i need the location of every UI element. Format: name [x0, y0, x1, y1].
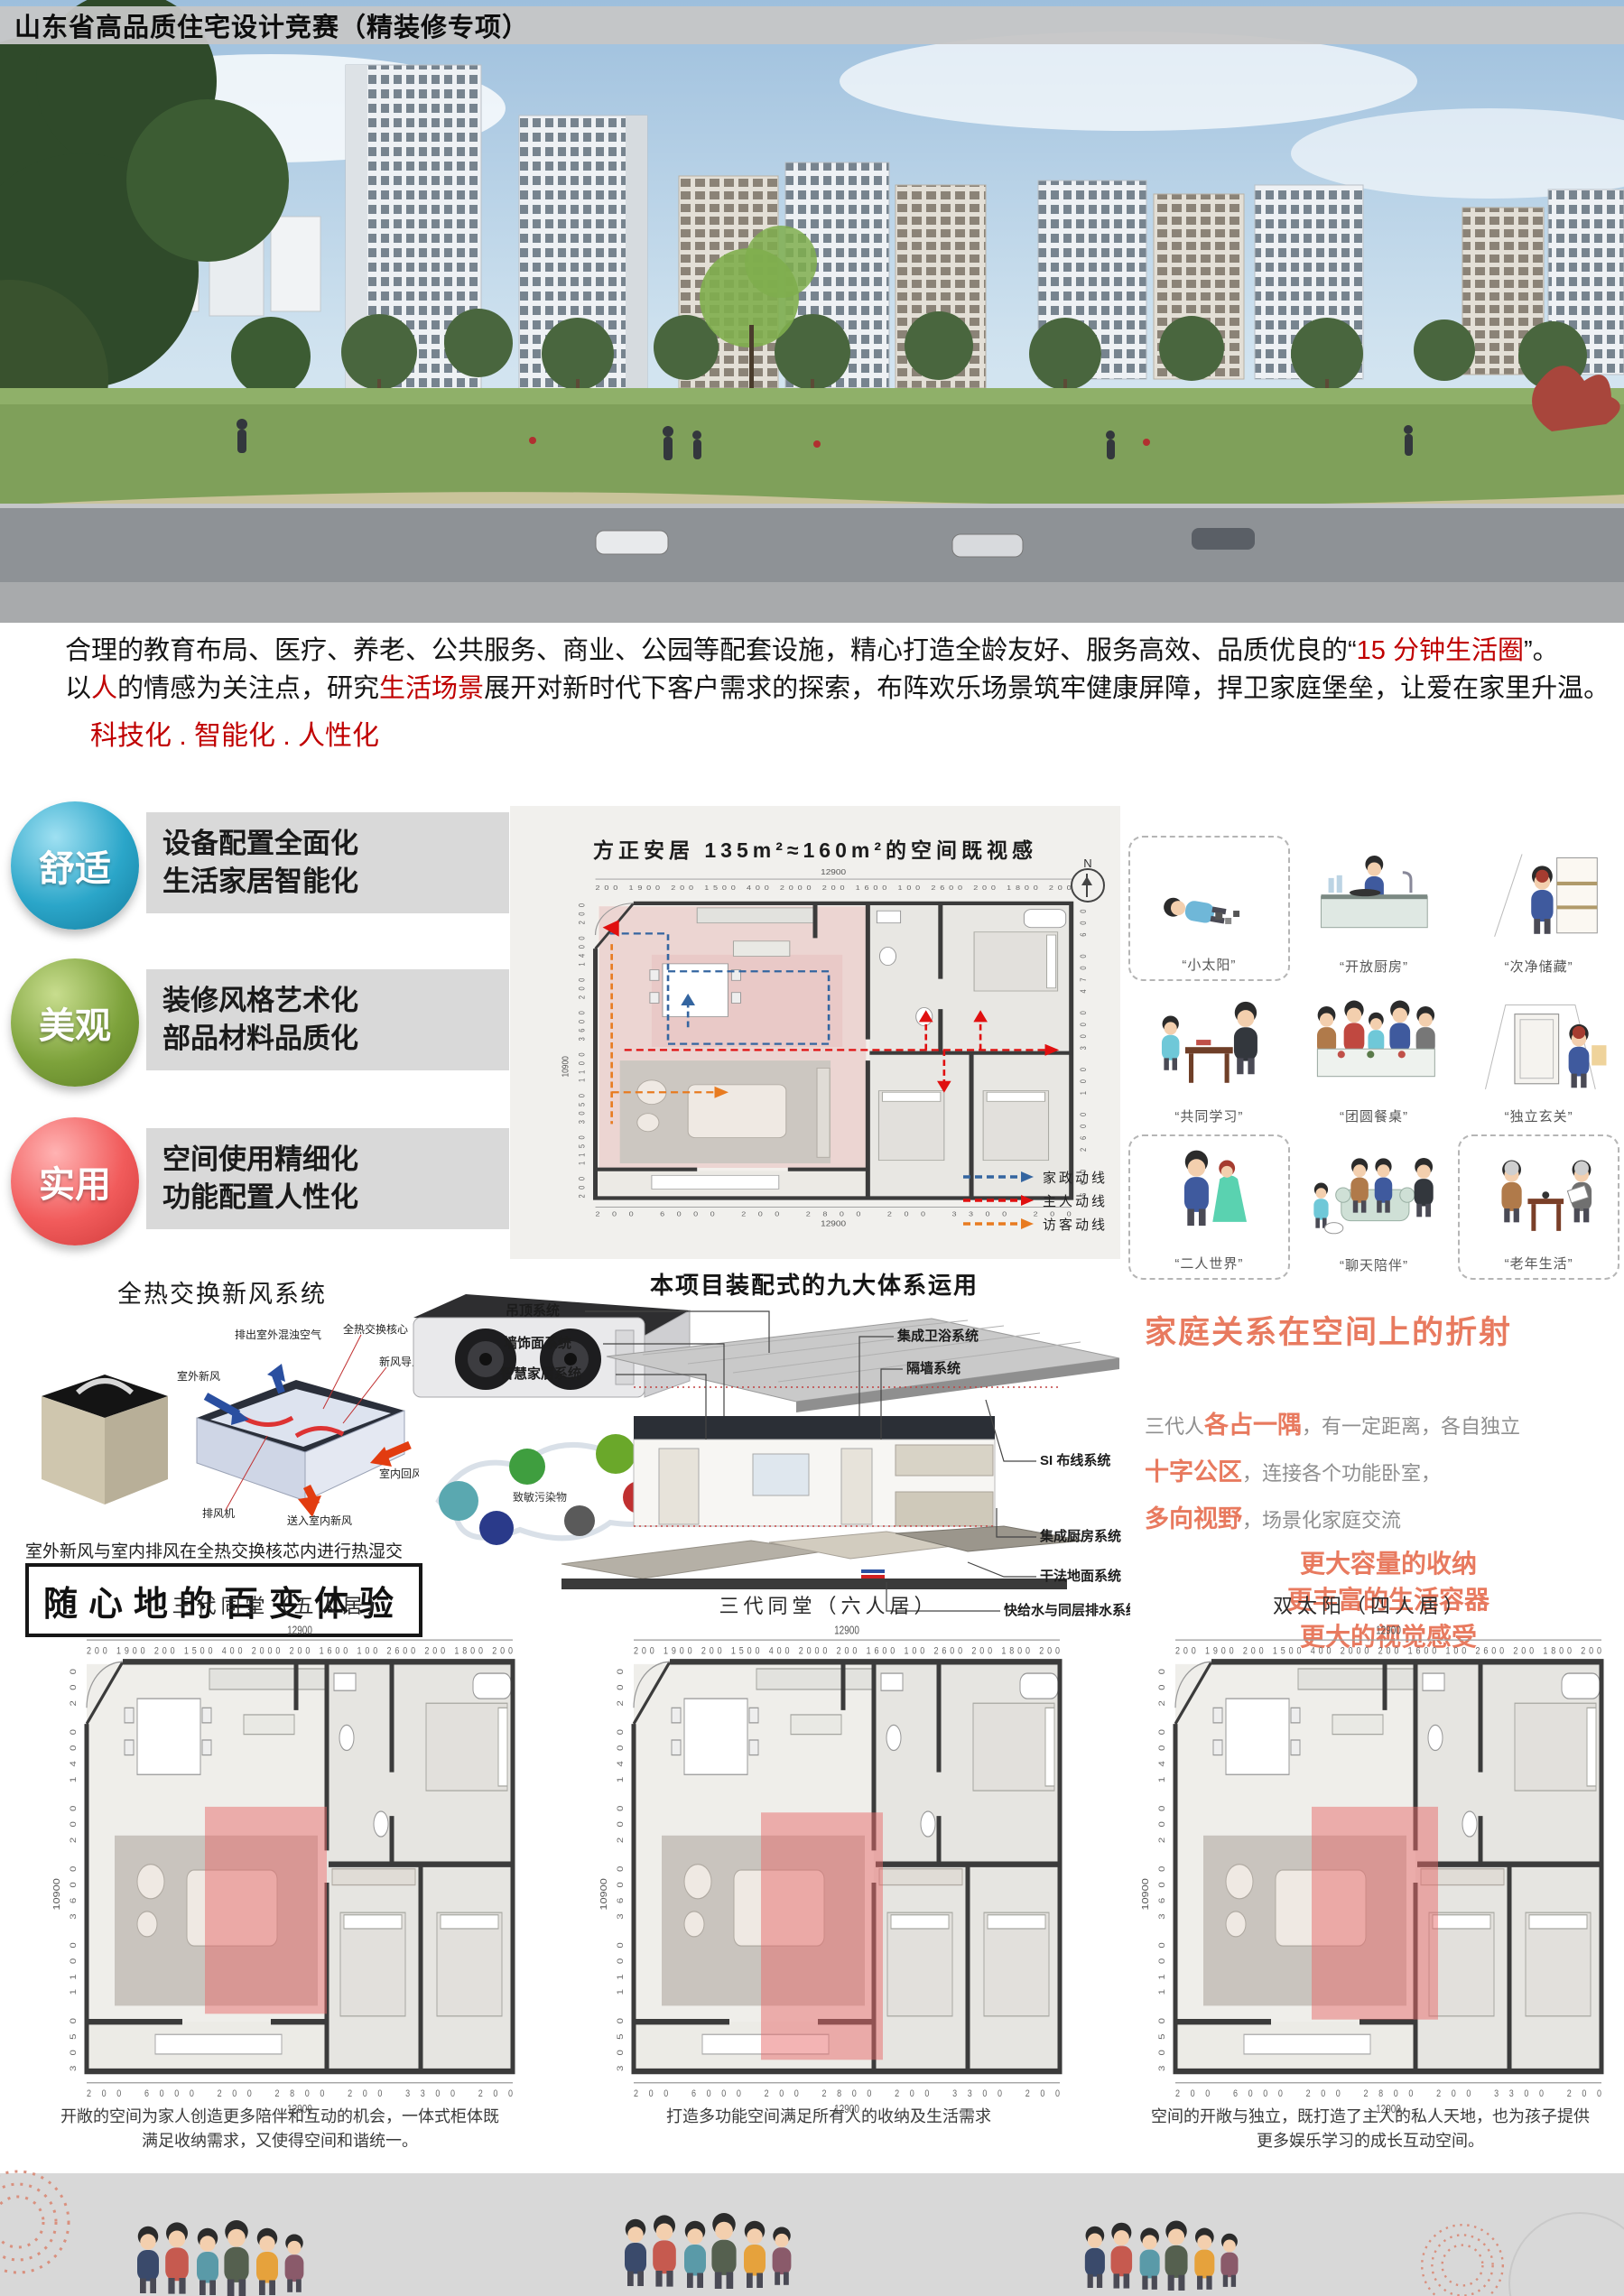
svg-text:10900: 10900 — [1141, 1878, 1150, 1910]
svg-text:10900: 10900 — [561, 1056, 571, 1077]
family-relation-title: 家庭关系在空间上的折射 — [1145, 1307, 1614, 1353]
title-band: 山东省高品质住宅设计竞赛（精装修专项） — [0, 6, 1624, 44]
plan-double-sun: 双太阳（四人居） 12900 200 1900 200 1500 400 200… — [1118, 1590, 1623, 2117]
people-group-center — [623, 2173, 831, 2289]
orange-dashed-arrow-icon — [963, 1218, 1034, 1229]
svg-text:3050 1100 3600 200 1400 200: 3050 1100 3600 200 1400 200 — [617, 1669, 626, 2071]
scene-storage-image — [1458, 836, 1619, 957]
comfort-text: 设备配置全面化 生活家居智能化 — [146, 812, 509, 913]
scene-entry-hall: “独立玄关” — [1458, 985, 1619, 1130]
beauty-circle: 美观 — [11, 958, 139, 1087]
fresh-air-title: 全热交换新风系统 — [25, 1274, 419, 1310]
svg-text:200 6000 200 2800 200 3300 200: 200 6000 200 2800 200 3300 200 — [87, 2088, 513, 2099]
hero-render-image — [0, 0, 1624, 623]
scene-senior-life: “老年生活” — [1458, 1134, 1619, 1280]
svg-text:墙饰面系统: 墙饰面系统 — [504, 1335, 571, 1351]
family-line-2: 十字公区，连接各个功能卧室， — [1145, 1454, 1614, 1492]
svg-text:干法地面系统: 干法地面系统 — [1040, 1568, 1121, 1584]
practical-circle: 实用 — [11, 1117, 139, 1245]
legend-visitor: 访客动线 — [963, 1212, 1108, 1236]
flow-legend: 家政动线 主人动线 访客动线 — [963, 1165, 1108, 1236]
scene-couple-world: “二人世界” — [1128, 1134, 1290, 1280]
badge-comfort: 舒适 设备配置全面化 生活家居智能化 — [11, 801, 509, 937]
svg-text:排出室外混浊空气: 排出室外混浊空气 — [235, 1328, 321, 1341]
filter-box-image — [42, 1375, 168, 1504]
intro-paragraph-1: 合理的教育布局、医疗、养老、公共服务、商业、公园等配套设施，精心打造全龄友好、服… — [13, 632, 1610, 670]
red-dashed-arrow-icon — [963, 1195, 1034, 1206]
svg-text:200 1900 200 1500 400 2000 200: 200 1900 200 1500 400 2000 200 1600 100 … — [634, 1646, 1060, 1657]
scene-chat-company: “聊天陪伴” — [1294, 1134, 1455, 1280]
comfort-circle: 舒适 — [11, 801, 139, 930]
svg-text:10900: 10900 — [52, 1878, 61, 1910]
svg-text:集成卫浴系统: 集成卫浴系统 — [896, 1328, 979, 1344]
plan-five-caption: 开敞的空间为家人创造更多陪伴和互动的机会，一体式柜体既满足收纳需求，又使得空间和… — [54, 2105, 506, 2153]
svg-text:智慧家居系统: 智慧家居系统 — [500, 1366, 581, 1382]
plan-five-person: 三代同堂（五人居） 12900 200 1900 200 1500 400 20… — [29, 1590, 534, 2117]
heat-exchange-unit-image — [197, 1364, 410, 1517]
scene-little-sun-image — [1130, 838, 1288, 955]
svg-text:200 6000 200 2800 200 3300 200: 200 6000 200 2800 200 3300 200 — [1175, 2088, 1601, 2099]
svg-text:200 1900 200 1500 400 2000 200: 200 1900 200 1500 400 2000 200 1600 100 … — [1175, 1646, 1601, 1657]
practical-text: 空间使用精细化 功能配置人性化 — [146, 1128, 509, 1229]
nine-systems-section: 本项目装配式的九大体系运用 — [498, 1267, 1130, 1623]
svg-text:集成厨房系统: 集成厨房系统 — [1039, 1528, 1121, 1544]
family-line-1: 三代人各占一隅，有一定距离，各自独立 — [1145, 1407, 1614, 1445]
svg-text:12900: 12900 — [834, 1625, 859, 1637]
scene-couple-world-image — [1130, 1136, 1288, 1254]
people-group-right — [1065, 2184, 1273, 2296]
svg-text:200 1900 200 1500 400 2000 200: 200 1900 200 1500 400 2000 200 1600 100 … — [87, 1646, 513, 1657]
svg-text:3050 1100 3600 200 1400 200: 3050 1100 3600 200 1400 200 — [70, 1669, 79, 2071]
svg-text:12900: 12900 — [287, 1625, 312, 1637]
svg-text:送入室内新风: 送入室内新风 — [287, 1514, 352, 1526]
intro-text: 合理的教育布局、医疗、养老、公共服务、商业、公园等配套设施，精心打造全龄友好、服… — [13, 632, 1610, 756]
svg-text:10900: 10900 — [599, 1878, 608, 1910]
svg-text:12900: 12900 — [821, 1219, 846, 1227]
people-group-left — [135, 2180, 343, 2296]
scene-senior-life-image — [1460, 1136, 1618, 1254]
dotted-decor-right — [1408, 2166, 1624, 2296]
main-floorplan-panel: 方正安居 135m²≈160m²的空间既视感 N 12900 200 1900 … — [510, 806, 1120, 1259]
poster-page: 山东省高品质住宅设计竞赛（精装修专项） 合理的教育布局、医疗、养老、公共服务、商… — [0, 0, 1624, 2296]
plan-five-person-drawing: 12900 200 1900 200 1500 400 2000 200 160… — [29, 1623, 534, 2117]
svg-text:200 1150 3050 1100 3600 200 14: 200 1150 3050 1100 3600 200 1400 200 — [577, 903, 587, 1199]
scene-study-together-image — [1128, 985, 1290, 1106]
svg-text:排风机: 排风机 — [202, 1507, 235, 1520]
nine-systems-title: 本项目装配式的九大体系运用 — [498, 1267, 1130, 1301]
plan-six-person-drawing: 12900 200 1900 200 1500 400 2000 200 160… — [576, 1623, 1081, 2117]
highlight-15min-circle: 15 分钟生活圈 — [1357, 636, 1524, 665]
legend-owner: 主人动线 — [963, 1189, 1108, 1212]
scene-open-kitchen-image — [1294, 836, 1455, 957]
svg-text:3050 1100 3600 200 1400 200: 3050 1100 3600 200 1400 200 — [1158, 1669, 1167, 2071]
plan-six-person: 三代同堂（六人居） 12900 200 1900 200 1500 400 20… — [576, 1590, 1081, 2117]
svg-text:200 1900 200 1500 400 2000 200: 200 1900 200 1500 400 2000 200 1600 100 … — [596, 884, 1072, 892]
life-scene-grid: “小太阳” “开放厨房” “次净储藏” — [1128, 836, 1619, 1280]
svg-text:室外新风: 室外新风 — [177, 1369, 220, 1383]
svg-text:吊顶系统: 吊顶系统 — [506, 1302, 560, 1319]
scene-reunion-table-image — [1294, 985, 1455, 1106]
plan-double-sun-caption: 空间的开敞与独立，既打造了主人的私人天地，也为孩子提供更多娱乐学习的成长互动空间… — [1145, 2105, 1596, 2153]
badge-beauty: 美观 装修风格艺术化 部品材料品质化 — [11, 958, 509, 1094]
family-line-3: 多向视野，场景化家庭交流 — [1145, 1501, 1614, 1539]
svg-text:SI 布线系统: SI 布线系统 — [1040, 1452, 1110, 1468]
scene-entry-hall-image — [1458, 985, 1619, 1106]
slogan: 科技化 . 智能化 . 人性化 — [13, 717, 1610, 756]
scene-reunion-table: “团圆餐桌” — [1294, 985, 1455, 1130]
scene-chat-company-image — [1294, 1134, 1455, 1255]
fresh-air-diagram: 排出室外混浊空气 全热交换核心 新风导入 室外新风 排风机 室内回风 送入室内新… — [25, 1310, 419, 1526]
scene-storage: “次净储藏” — [1458, 836, 1619, 981]
dotted-decor-left — [0, 2148, 99, 2296]
scene-open-kitchen: “开放厨房” — [1294, 836, 1455, 981]
nine-systems-axon: 吊顶系统 墙饰面系统 智慧家居系统 集成卫浴系统 隔墙系统 SI 布线系统 集成… — [498, 1301, 1130, 1618]
scene-little-sun: “小太阳” — [1128, 836, 1290, 981]
plan-six-caption: 打造多功能空间满足所有人的收纳及生活需求 — [603, 2105, 1054, 2129]
svg-text:全热交换核心: 全热交换核心 — [343, 1322, 408, 1336]
legend-housework: 家政动线 — [963, 1165, 1108, 1189]
svg-text:12900: 12900 — [821, 868, 846, 876]
svg-text:600 2600 100 3000 4700 600: 600 2600 100 3000 4700 600 — [1078, 909, 1088, 1197]
svg-text:200 6000 200 2800 200 3300 200: 200 6000 200 2800 200 3300 200 — [634, 2088, 1060, 2099]
intro-paragraph-2: 以人的情感为关注点，研究生活场景展开对新时代下客户需求的探索，布阵欢乐场景筑牢健… — [13, 670, 1610, 708]
main-floorplan-title: 方正安居 135m²≈160m²的空间既视感 — [510, 806, 1120, 864]
scene-study-together: “共同学习” — [1128, 985, 1290, 1130]
highlight-life-scene: 生活场景 — [379, 674, 484, 703]
svg-text:12900: 12900 — [1376, 1625, 1401, 1637]
beauty-text: 装修风格艺术化 部品材料品质化 — [146, 969, 509, 1070]
svg-text:隔墙系统: 隔墙系统 — [906, 1360, 960, 1376]
blue-dashed-arrow-icon — [963, 1171, 1034, 1182]
fresh-air-section: 全热交换新风系统 — [25, 1274, 419, 1587]
badge-practical: 实用 空间使用精细化 功能配置人性化 — [11, 1117, 509, 1253]
plan-double-sun-drawing: 12900 200 1900 200 1500 400 2000 200 160… — [1118, 1623, 1623, 2117]
page-title: 山东省高品质住宅设计竞赛（精装修专项） — [0, 6, 529, 44]
